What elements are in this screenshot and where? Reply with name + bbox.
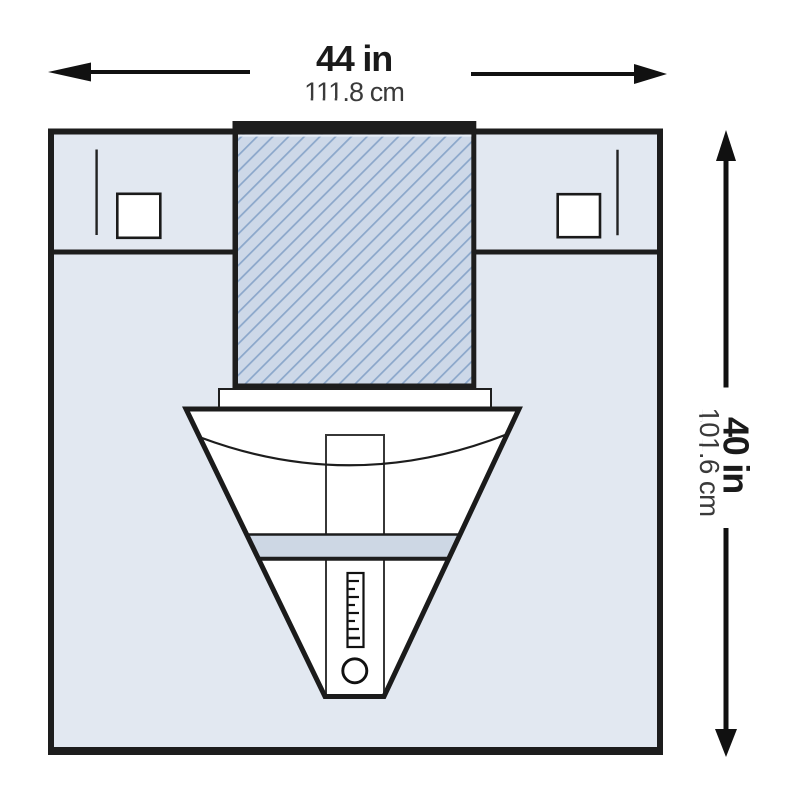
svg-text:44 in: 44 in <box>316 38 392 79</box>
svg-text:111.8 cm: 111.8 cm <box>304 77 404 107</box>
svg-text:101.6 cm: 101.6 cm <box>694 407 725 516</box>
